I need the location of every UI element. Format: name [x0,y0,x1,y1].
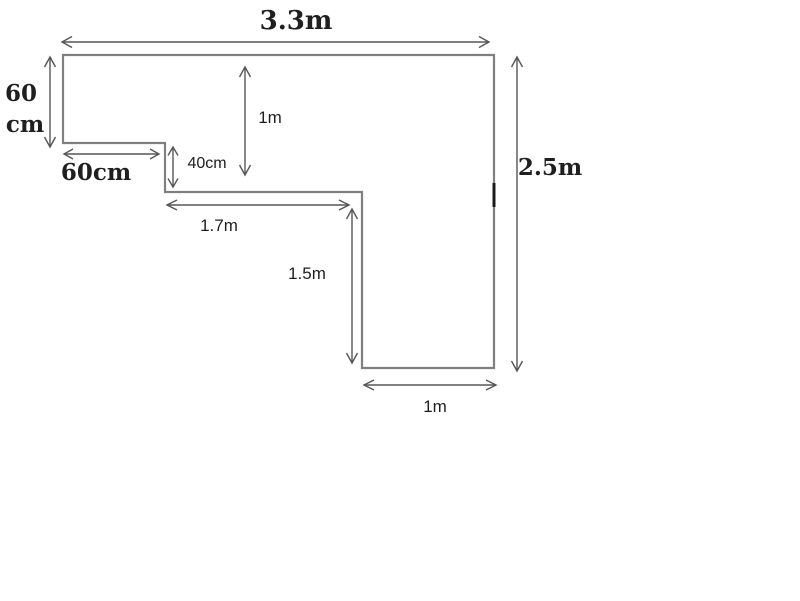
diagram-stage: 3.3m 60 cm 60cm 40cm 1m 1.7m 1.5m 2.5m 1… [0,0,800,601]
label-notch-height: 40cm [187,155,226,172]
page: { "figure": { "kind": "dimensioned-floor… [0,0,800,601]
label-bottom-width: 1m [423,397,447,416]
dim-arrow-right-height [512,57,523,371]
label-upper-inner-height: 1m [258,108,282,127]
label-top-width: 3.3m [260,6,333,36]
dim-arrow-left-height [45,57,56,147]
floor-plan-outline [63,55,494,368]
label-left-height-line2: cm [6,111,44,138]
dim-arrow-upper-inner-height [240,67,251,175]
dim-arrow-top-width [62,37,489,48]
label-notch-width: 60cm [61,159,131,186]
dim-arrow-notch-height [168,147,178,187]
label-left-height-line1: 60 [5,80,37,107]
label-middle-width: 1.7m [200,216,238,235]
label-lower-inner-height: 1.5m [288,264,326,283]
dim-arrow-lower-inner-height [347,209,358,363]
floor-plan-diagram: 3.3m 60 cm 60cm 40cm 1m 1.7m 1.5m 2.5m 1… [0,0,800,601]
label-right-height: 2.5m [518,154,582,181]
dim-arrow-notch-width [64,149,159,159]
dim-arrow-bottom-width [364,380,496,390]
dim-arrow-middle-width [167,200,349,210]
